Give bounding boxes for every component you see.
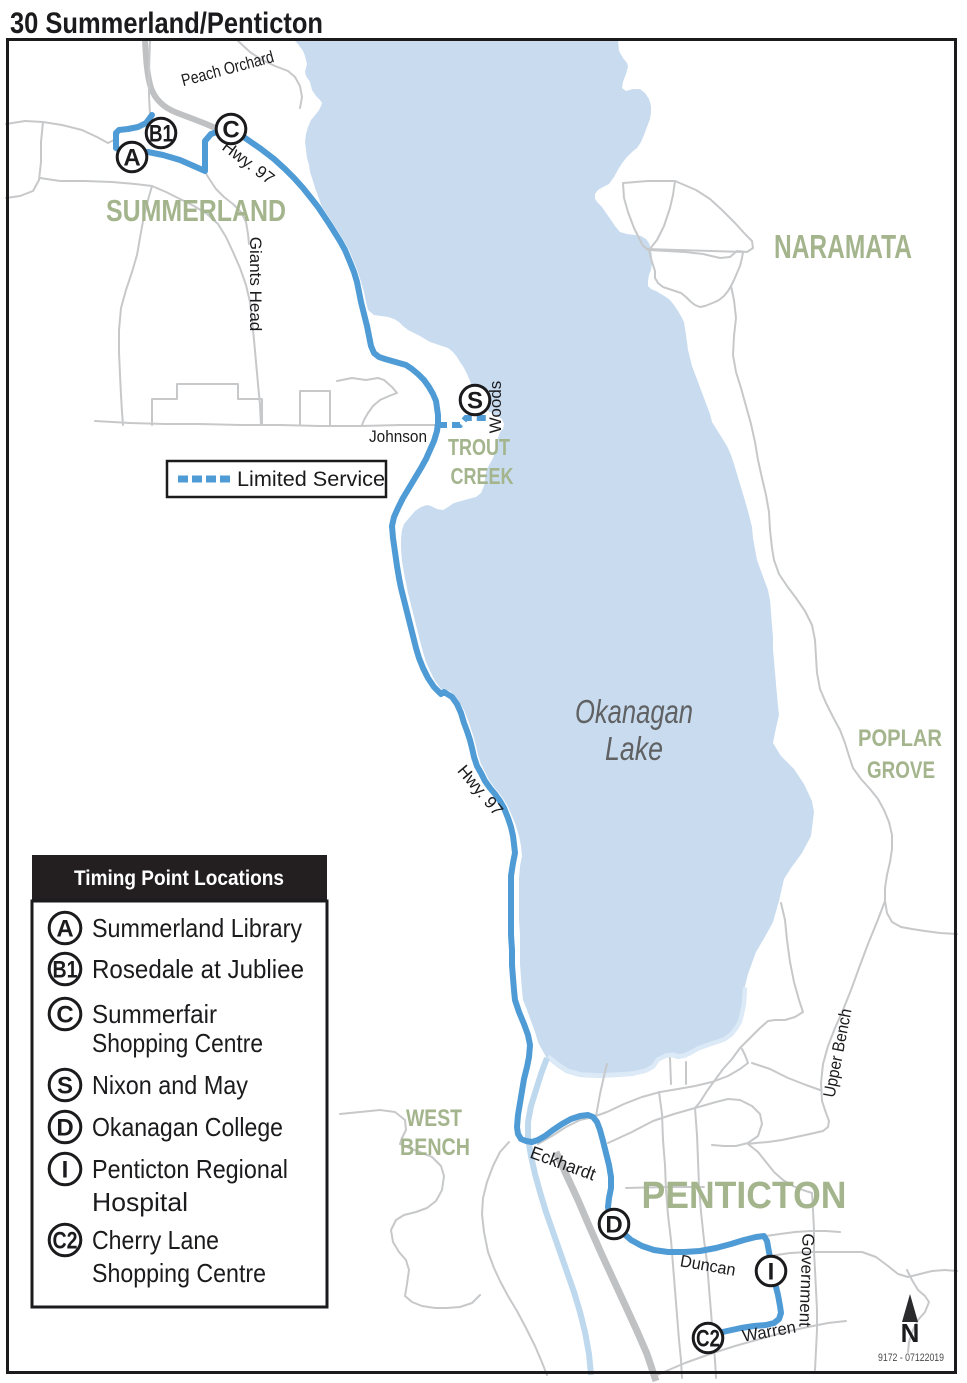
svg-text:Shopping Centre: Shopping Centre bbox=[92, 1028, 263, 1058]
svg-text:A: A bbox=[123, 145, 140, 172]
svg-text:Okanagan College: Okanagan College bbox=[92, 1112, 283, 1142]
svg-text:C: C bbox=[222, 117, 239, 144]
svg-text:Hospital: Hospital bbox=[92, 1187, 188, 1217]
svg-text:C2: C2 bbox=[53, 1228, 78, 1255]
svg-text:Government: Government bbox=[795, 1233, 817, 1327]
svg-text:Timing Point Locations: Timing Point Locations bbox=[74, 867, 284, 890]
svg-text:D: D bbox=[605, 1212, 622, 1239]
svg-text:N: N bbox=[901, 1318, 920, 1348]
svg-text:S: S bbox=[57, 1073, 73, 1100]
svg-text:Summerfair: Summerfair bbox=[92, 999, 217, 1029]
svg-text:B1: B1 bbox=[149, 121, 173, 148]
svg-text:WEST: WEST bbox=[406, 1105, 462, 1132]
svg-text:Summerland Library: Summerland Library bbox=[92, 913, 302, 943]
svg-text:9172 - 07122019: 9172 - 07122019 bbox=[878, 1352, 944, 1364]
svg-text:I: I bbox=[768, 1259, 775, 1286]
svg-text:CREEK: CREEK bbox=[451, 463, 514, 489]
svg-text:Limited Service: Limited Service bbox=[237, 468, 385, 491]
svg-text:PENTICTON: PENTICTON bbox=[642, 1175, 847, 1217]
svg-text:Penticton Regional: Penticton Regional bbox=[92, 1154, 288, 1184]
svg-text:NARAMATA: NARAMATA bbox=[774, 228, 912, 265]
svg-text:D: D bbox=[56, 1115, 73, 1142]
svg-text:30 Summerland/Penticton: 30 Summerland/Penticton bbox=[10, 7, 323, 40]
svg-text:Lake: Lake bbox=[605, 730, 663, 767]
svg-text:POPLAR: POPLAR bbox=[858, 725, 942, 752]
svg-text:C: C bbox=[56, 1002, 73, 1029]
svg-text:Okanagan: Okanagan bbox=[575, 693, 693, 730]
svg-text:TROUT: TROUT bbox=[448, 434, 510, 460]
svg-text:Shopping Centre: Shopping Centre bbox=[92, 1258, 266, 1288]
svg-text:GROVE: GROVE bbox=[867, 757, 935, 784]
svg-text:Cherry Lane: Cherry Lane bbox=[92, 1225, 219, 1255]
svg-text:Johnson: Johnson bbox=[369, 427, 427, 446]
svg-text:S: S bbox=[467, 388, 483, 415]
svg-text:Giants Head: Giants Head bbox=[246, 237, 265, 332]
svg-text:B1: B1 bbox=[53, 957, 78, 984]
svg-text:Nixon and May: Nixon and May bbox=[92, 1070, 248, 1100]
svg-text:A: A bbox=[56, 916, 73, 943]
svg-text:SUMMERLAND: SUMMERLAND bbox=[106, 193, 286, 228]
svg-text:C2: C2 bbox=[696, 1326, 720, 1353]
svg-text:BENCH: BENCH bbox=[400, 1134, 470, 1161]
svg-text:Rosedale at Jubliee: Rosedale at Jubliee bbox=[92, 954, 304, 984]
svg-text:I: I bbox=[62, 1157, 69, 1184]
